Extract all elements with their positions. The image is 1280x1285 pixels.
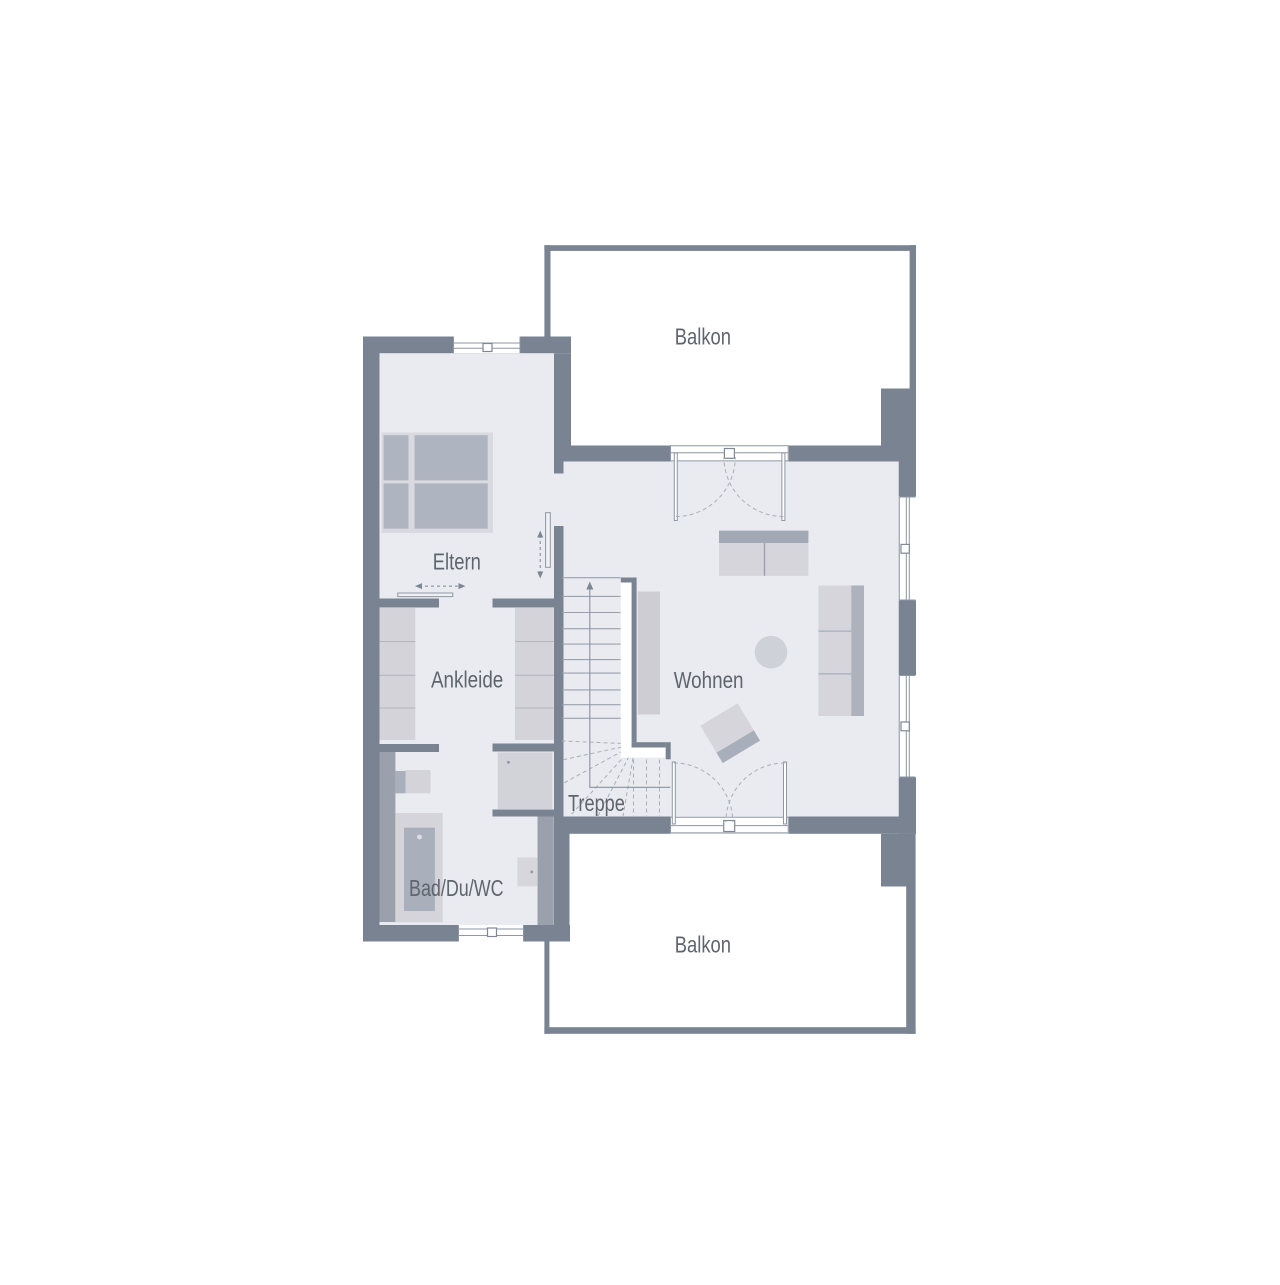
svg-text:Eltern: Eltern (433, 550, 481, 575)
svg-text:Wohnen: Wohnen (674, 668, 744, 693)
svg-text:Bad/Du/WC: Bad/Du/WC (409, 876, 504, 902)
svg-text:Balkon: Balkon (675, 933, 731, 958)
svg-text:Balkon: Balkon (675, 324, 731, 349)
svg-text:Ankleide: Ankleide (431, 668, 503, 693)
svg-text:Treppe: Treppe (568, 791, 625, 817)
